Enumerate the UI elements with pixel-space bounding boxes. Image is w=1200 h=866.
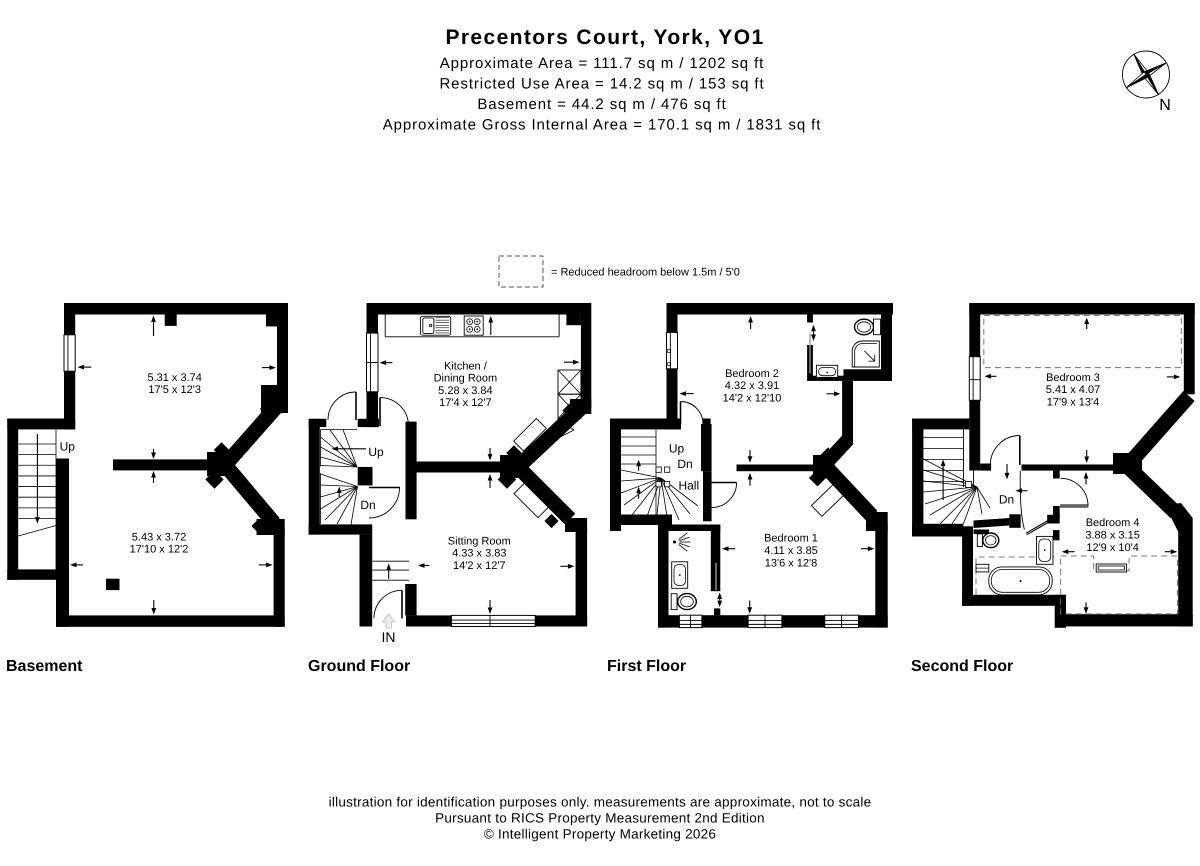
svg-text:Approximate Gross Internal Are: Approximate Gross Internal Area = 170.1 … [383,117,822,134]
svg-text:Kitchen /: Kitchen / [444,361,488,373]
svg-text:Basement: Basement [6,658,83,675]
svg-text:Basement = 44.2 sq m / 476 sq: Basement = 44.2 sq m / 476 sq ft [477,96,726,113]
svg-text:Up: Up [368,445,384,459]
svg-text:Dn: Dn [677,457,692,471]
svg-text:Bedroom 1: Bedroom 1 [764,533,818,545]
svg-text:Approximate Area = 111.7 sq m: Approximate Area = 111.7 sq m / 1202 sq … [440,55,765,72]
svg-text:Bedroom 3: Bedroom 3 [1046,372,1100,384]
svg-text:17'10 x 12'2: 17'10 x 12'2 [130,544,189,556]
svg-text:Dn: Dn [360,498,375,512]
svg-text:12'9 x 10'4: 12'9 x 10'4 [1086,542,1139,554]
svg-text:17'9 x 13'4: 17'9 x 13'4 [1047,396,1100,408]
svg-text:First Floor: First Floor [607,658,686,675]
svg-text:IN: IN [382,629,396,645]
svg-text:= Reduced headroom below 1.5m: = Reduced headroom below 1.5m / 5'0 [551,267,740,279]
svg-text:N: N [1159,97,1171,114]
svg-text:5.31 x 3.74: 5.31 x 3.74 [147,372,201,384]
svg-text:5.41 x 4.07: 5.41 x 4.07 [1046,384,1100,396]
svg-text:Dining Room: Dining Room [434,373,498,385]
svg-text:4.11 x 3.85: 4.11 x 3.85 [764,545,818,557]
svg-text:Up: Up [669,442,685,456]
svg-text:Precentors Court, York, YO1: Precentors Court, York, YO1 [445,26,764,49]
svg-text:14'2 x 12'10: 14'2 x 12'10 [723,392,782,404]
svg-text:Bedroom 2: Bedroom 2 [725,368,779,380]
svg-text:17'4 x 12'7: 17'4 x 12'7 [439,397,492,409]
svg-text:Dn: Dn [999,493,1014,507]
svg-text:Restricted Use Area = 14.2 sq: Restricted Use Area = 14.2 sq m / 153 sq… [439,76,764,93]
svg-text:17'5 x 12'3: 17'5 x 12'3 [148,384,201,396]
svg-text:illustration for identificatio: illustration for identification purposes… [329,795,872,810]
svg-text:5.28 x 3.84: 5.28 x 3.84 [438,385,492,397]
svg-text:Pursuant to RICS Property Meas: Pursuant to RICS Property Measurement 2n… [435,811,765,826]
svg-text:Sitting Room: Sitting Room [448,535,511,547]
svg-text:4.33 x 3.83: 4.33 x 3.83 [452,548,506,560]
svg-text:Second Floor: Second Floor [911,658,1013,675]
svg-text:5.43 x 3.72: 5.43 x 3.72 [132,532,186,544]
svg-text:13'6 x 12'8: 13'6 x 12'8 [765,558,818,570]
svg-text:Bedroom 4: Bedroom 4 [1086,517,1140,529]
svg-text:Hall: Hall [678,479,699,493]
svg-text:3.88 x 3.15: 3.88 x 3.15 [1085,530,1139,542]
svg-text:Up: Up [60,440,76,454]
svg-text:© Intelligent Property Marketi: © Intelligent Property Marketing 2026 [484,827,716,842]
svg-text:14'2 x 12'7: 14'2 x 12'7 [453,560,506,572]
svg-text:Ground Floor: Ground Floor [308,658,410,675]
svg-text:4.32 x 3.91: 4.32 x 3.91 [725,380,779,392]
